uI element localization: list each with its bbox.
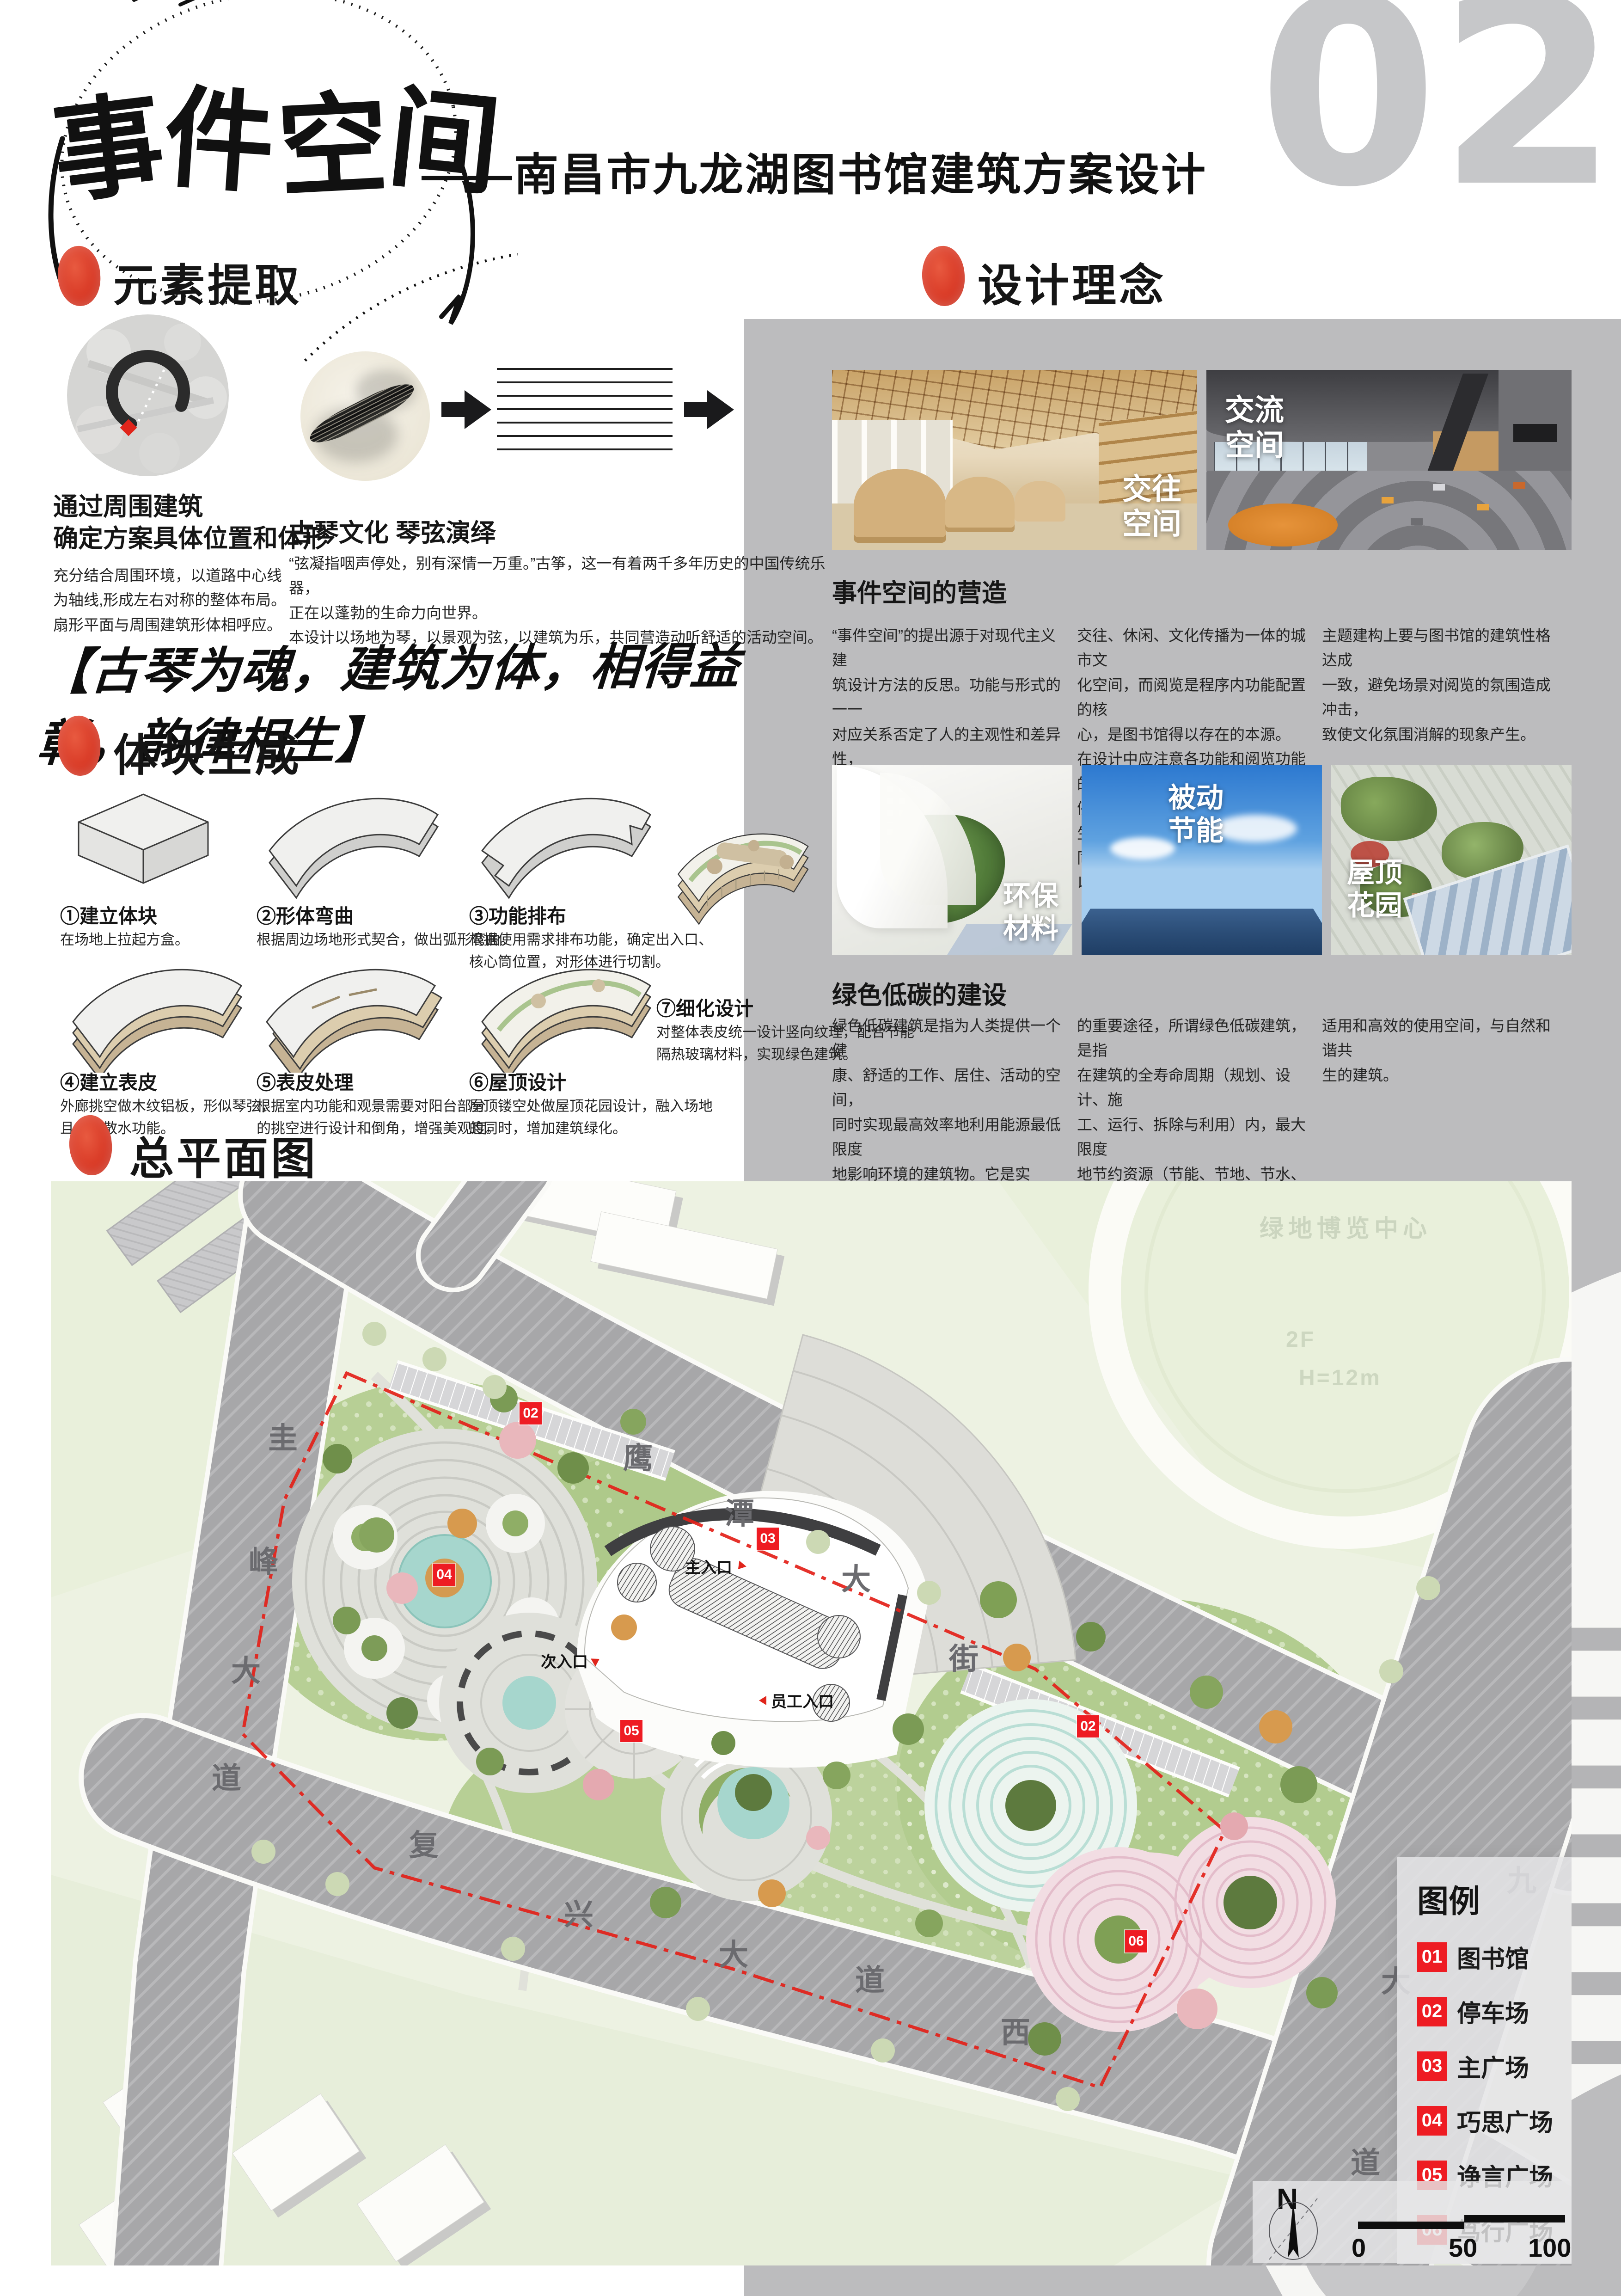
scale-tick-50: 50 bbox=[1449, 2233, 1477, 2263]
eco-photo-materials: 环保 材料 bbox=[832, 765, 1072, 955]
wall-shelf bbox=[1513, 424, 1557, 442]
legend-item: 02 停车场 bbox=[1417, 1994, 1529, 2029]
reference-photo-reading-space: 交往 空间 bbox=[832, 370, 1197, 550]
road-label-yingtan: 鹰 bbox=[623, 1435, 653, 1477]
step-title: 屋顶设计 bbox=[489, 1072, 566, 1093]
context-building-floors: 2F bbox=[1286, 1327, 1315, 1352]
massing-step1-diagram bbox=[60, 786, 226, 897]
scale-bar-segment bbox=[1464, 2215, 1565, 2222]
entrance-text: 员工入口 bbox=[771, 1689, 834, 1712]
step-title: 形体弯曲 bbox=[276, 905, 354, 927]
book-pod bbox=[1015, 481, 1065, 522]
green-column-3: 适用和高效的使用空间，与自然和谐共 生的建筑。 bbox=[1322, 1013, 1553, 1087]
page-number: 02 bbox=[1258, 0, 1618, 223]
legend-label: 巧思广场 bbox=[1457, 2103, 1553, 2138]
plan-marker-parking: 02 bbox=[1077, 1715, 1099, 1737]
massing-step3-diagram bbox=[469, 781, 663, 902]
book-pod bbox=[945, 477, 1015, 532]
road-label-fuxing: 道 bbox=[855, 1957, 885, 1999]
entrance-label-secondary: 次入口 bbox=[541, 1649, 600, 1672]
road-label-fuxing: 西 bbox=[1001, 2009, 1030, 2051]
step-desc: 屋顶镂空处做屋顶花园设计，融入场地 的同时，增加建筑绿化。 bbox=[469, 1095, 713, 1140]
photo-caption: 被动 节能 bbox=[1168, 782, 1223, 847]
solar-panel-field bbox=[1082, 909, 1322, 955]
scale-bar-segment bbox=[1358, 2222, 1464, 2229]
presentation-board: 事件空间 ——南昌市九龙湖图书馆建筑方案设计 02 元素提取 bbox=[0, 0, 1621, 2296]
qin-strings-diagram bbox=[497, 365, 673, 453]
plan-marker-zhengyan-square: 05 bbox=[620, 1720, 642, 1742]
section-heading-massing: 体块生成 bbox=[113, 719, 302, 784]
road-label-guifeng: 道 bbox=[212, 1755, 241, 1797]
road-label-yingtan: 潭 bbox=[725, 1490, 754, 1533]
step-number: ③ bbox=[469, 905, 489, 927]
cushion bbox=[1382, 497, 1394, 503]
photo-caption: 交往 空间 bbox=[1122, 472, 1181, 542]
context-building-height: H=12m bbox=[1299, 1365, 1382, 1391]
photo-caption: 交流 空间 bbox=[1225, 393, 1284, 463]
site-aerial-photo bbox=[67, 314, 229, 476]
legend-title: 图例 bbox=[1417, 1876, 1480, 1922]
legend-label: 停车场 bbox=[1457, 1994, 1529, 2029]
road-label-yingtan: 大 bbox=[841, 1556, 871, 1598]
massing-step2-diagram bbox=[257, 781, 451, 902]
photo-caption: 环保 材料 bbox=[1003, 880, 1058, 945]
title-char: 件 bbox=[159, 48, 283, 215]
flow-arrow-icon bbox=[684, 388, 735, 431]
planting-bed bbox=[1341, 777, 1437, 841]
legend-badge: 04 bbox=[1417, 2106, 1447, 2136]
step-number: ⑦ bbox=[656, 998, 676, 1019]
legend-item: 01 图书馆 bbox=[1417, 1940, 1529, 1974]
site-plan-drawing bbox=[51, 1181, 1572, 2265]
legend-badge: 02 bbox=[1417, 1997, 1447, 2026]
road-label-yingtan: 街 bbox=[949, 1635, 979, 1678]
road-label-guifeng: 大 bbox=[231, 1647, 261, 1690]
plan-marker-duxing-square: 06 bbox=[1125, 1930, 1147, 1952]
section-heading-design-concept: 设计理念 bbox=[978, 250, 1166, 314]
photo-caption: 屋顶 花园 bbox=[1347, 857, 1402, 922]
flow-arrow-icon bbox=[441, 388, 492, 431]
entrance-label-staff: 员工入口 bbox=[759, 1689, 834, 1712]
step-title: 表皮处理 bbox=[276, 1072, 354, 1093]
road-label-fuxing: 兴 bbox=[564, 1891, 593, 1934]
road-label-guifeng: 圭 bbox=[268, 1415, 298, 1457]
massing-step6-caption: ⑥屋顶设计 屋顶镂空处做屋顶花园设计，融入场地 的同时，增加建筑绿化。 bbox=[469, 1067, 713, 1140]
north-and-scale-box: N 0 50 100m bbox=[1253, 2181, 1572, 2263]
cushion bbox=[1433, 484, 1445, 491]
concept-subheading: 事件空间的营造 bbox=[832, 572, 1007, 609]
entrance-text: 主入口 bbox=[685, 1555, 732, 1578]
step-desc: 根据使用需求排布功能，确定出入口、 核心筒位置，对形体进行切割。 bbox=[469, 929, 713, 973]
book-pod bbox=[854, 469, 946, 543]
road-label-fuxing: 复 bbox=[409, 1822, 439, 1864]
step-number: ⑥ bbox=[469, 1072, 489, 1093]
plan-marker-main-square: 03 bbox=[757, 1528, 779, 1550]
orange-rug bbox=[1228, 503, 1338, 547]
entrance-arrow-icon bbox=[759, 1696, 766, 1705]
legend-item: 04 巧思广场 bbox=[1417, 2103, 1553, 2138]
step-number: ⑤ bbox=[257, 1072, 276, 1093]
eco-photo-solar: 被动 节能 bbox=[1082, 765, 1322, 955]
concept-column-3: 主题建构上要与图书馆的建筑性格达成 一致，避免场景对阅览的氛围造成冲击， 致使文… bbox=[1322, 623, 1553, 747]
heading-dash-arc-decoration bbox=[287, 240, 527, 370]
entrance-text: 次入口 bbox=[541, 1649, 588, 1672]
massing-step4-diagram bbox=[60, 952, 254, 1073]
legend-badge: 03 bbox=[1417, 2051, 1447, 2081]
section-heading-element-extraction: 元素提取 bbox=[113, 250, 302, 314]
legend-badge: 01 bbox=[1417, 1942, 1447, 1972]
legend-label: 图书馆 bbox=[1457, 1940, 1529, 1974]
step-title: 细化设计 bbox=[676, 998, 753, 1019]
step-number: ② bbox=[257, 905, 276, 927]
cloud bbox=[1110, 837, 1175, 859]
extraction-item2-title: 古琴文化 琴弦演绎 bbox=[289, 512, 495, 549]
step-title: 功能排布 bbox=[489, 905, 566, 927]
board-subtitle: ——南昌市九龙湖图书馆建筑方案设计 bbox=[422, 139, 1207, 203]
massing-step3-caption: ③功能排布 根据使用需求排布功能，确定出入口、 核心筒位置，对形体进行切割。 bbox=[469, 901, 713, 973]
step-desc: 在场地上拉起方盒。 bbox=[60, 929, 189, 951]
road-label-guifeng: 峰 bbox=[249, 1538, 278, 1581]
scale-tick-100: 100m bbox=[1528, 2233, 1572, 2263]
cushion bbox=[1411, 518, 1423, 525]
step-number: ① bbox=[60, 905, 80, 927]
section-seal-icon bbox=[920, 244, 967, 308]
plan-marker-qiaosi-square: 04 bbox=[433, 1564, 455, 1586]
reference-photo-communication-space: 交流 空间 bbox=[1206, 370, 1572, 550]
step-number: ④ bbox=[60, 1072, 80, 1093]
eco-photo-roof-garden: 屋顶 花园 bbox=[1331, 765, 1572, 955]
compass-icon bbox=[1261, 2194, 1326, 2263]
green-building-heading: 绿色低碳的建设 bbox=[832, 975, 1007, 1011]
guqin-ink-painting bbox=[300, 351, 430, 481]
massing-step5-diagram bbox=[257, 952, 451, 1073]
context-building-label: 绿地博览中心 bbox=[1260, 1209, 1431, 1244]
legend-label: 主广场 bbox=[1457, 2049, 1529, 2083]
road-label-fuxing: 大 bbox=[719, 1931, 748, 1974]
step-title: 建立表皮 bbox=[80, 1072, 157, 1093]
cloud bbox=[1214, 815, 1297, 842]
step-title: 建立体块 bbox=[80, 905, 157, 927]
legend-item: 03 主广场 bbox=[1417, 2049, 1529, 2083]
extraction-item1-title: 通过周围建筑 确定方案具体位置和体形 bbox=[53, 491, 328, 555]
title-char: 空 bbox=[273, 54, 394, 219]
road-label-jiulong: 道 bbox=[1351, 2139, 1380, 2182]
master-plan-map: 绿地博览中心 2F H=12m 圭 峰 大 道 鹰 潭 大 街 复 兴 大 道 … bbox=[51, 1181, 1572, 2265]
entrance-label-main: 主入口 bbox=[685, 1555, 744, 1578]
page-curl bbox=[880, 773, 976, 905]
section-heading-master-plan: 总平面图 bbox=[129, 1123, 318, 1187]
extraction-item1-body: 充分结合周围环境，以道路中心线 为轴线,形成左右对称的整体布局。 扇形平面与周围… bbox=[53, 563, 286, 637]
cushion bbox=[1513, 482, 1525, 489]
scale-tick-0: 0 bbox=[1352, 2233, 1366, 2263]
plan-marker-parking: 02 bbox=[520, 1402, 542, 1424]
cushion bbox=[1477, 504, 1489, 510]
massing-step1-caption: ①建立体块 在场地上拉起方盒。 bbox=[60, 901, 189, 951]
title-char: 事 bbox=[43, 53, 174, 225]
